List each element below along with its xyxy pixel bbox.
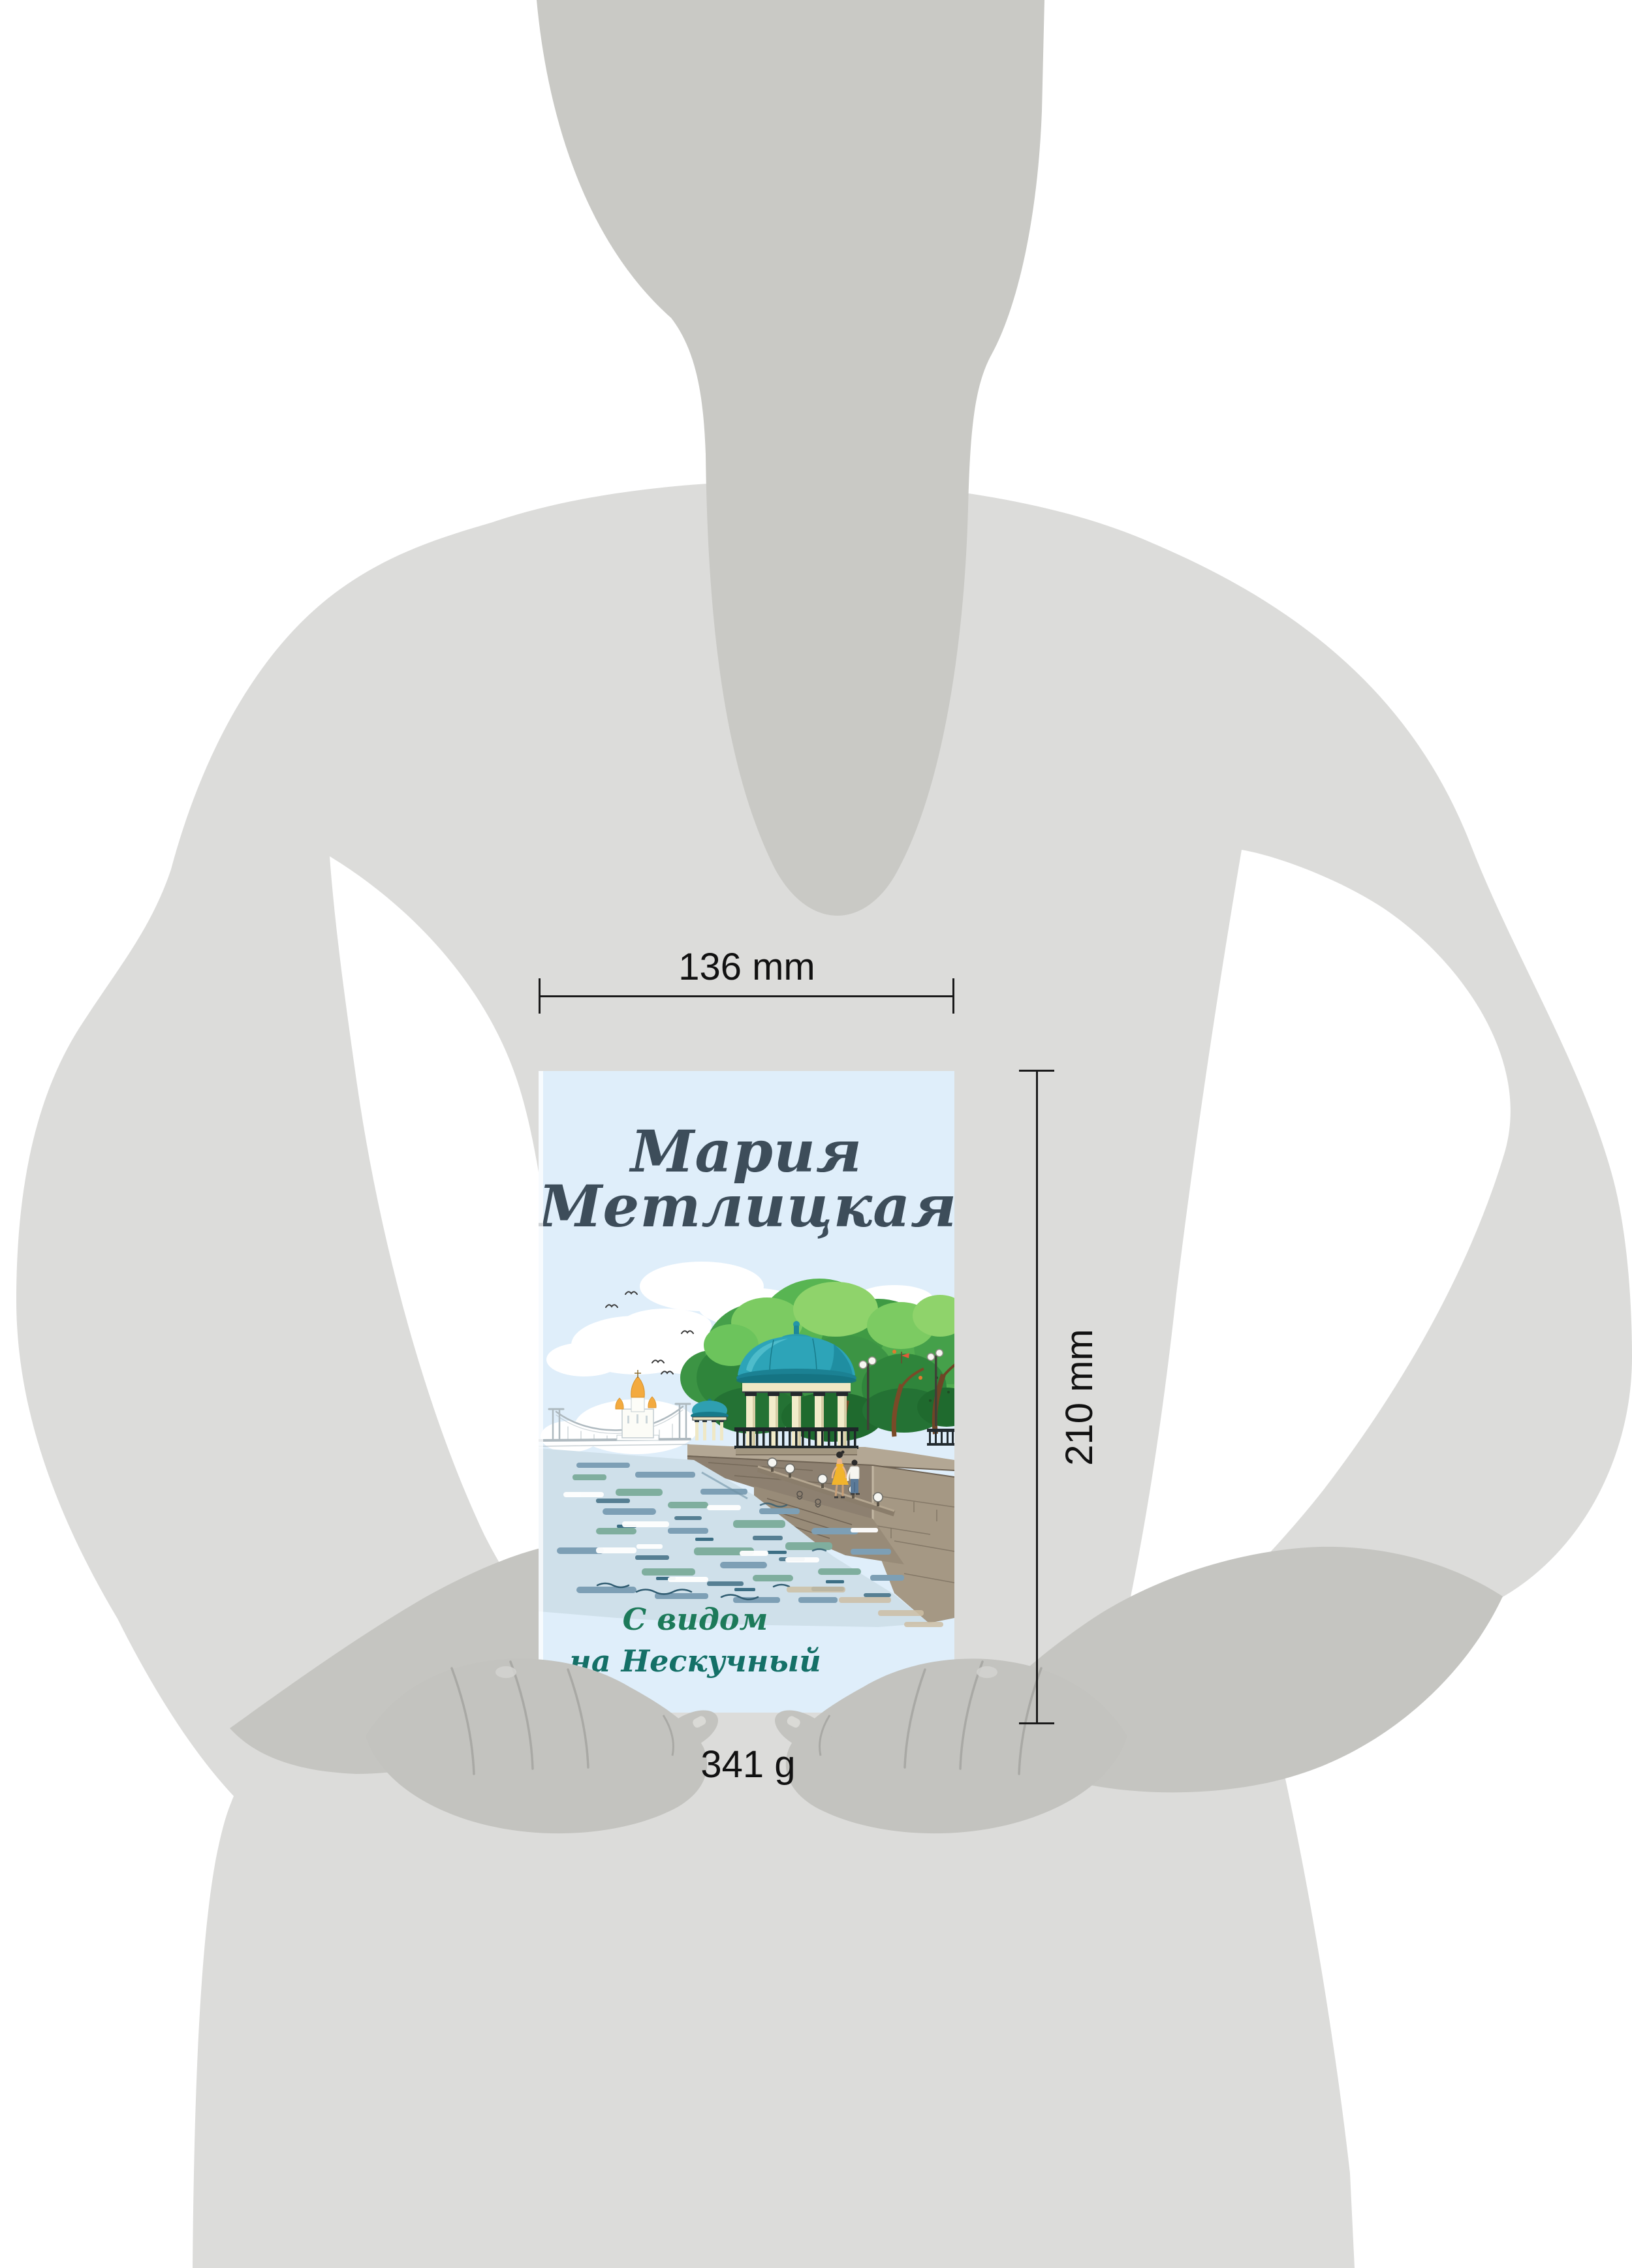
width-dimension-tick-right xyxy=(952,978,954,1014)
right-knuckle-highlight xyxy=(977,1666,997,1678)
weight-label: 341 g xyxy=(585,1743,911,1786)
width-dimension-tick-left xyxy=(539,978,541,1014)
height-dimension-tick-top xyxy=(1019,1070,1054,1072)
height-dimension-label: 210 mm xyxy=(1058,1299,1099,1495)
width-dimension-label: 136 mm xyxy=(584,945,910,989)
left-knuckle-highlight xyxy=(495,1666,516,1678)
height-dimension-line xyxy=(1036,1071,1038,1724)
hands xyxy=(0,0,1632,2268)
product-photo: Мария Метлицкая С видом на Нескучный xyxy=(0,0,1632,2268)
width-dimension-line xyxy=(539,995,954,997)
height-dimension-tick-bottom xyxy=(1019,1722,1054,1724)
